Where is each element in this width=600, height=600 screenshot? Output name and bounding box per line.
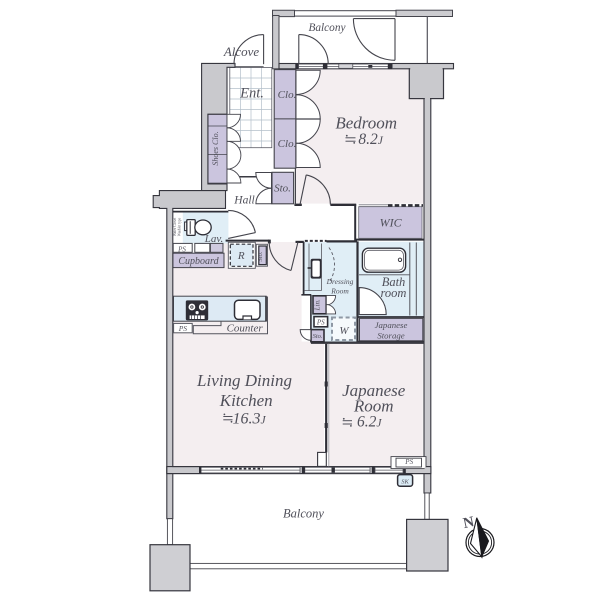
svg-text:PS: PS (404, 458, 413, 466)
svg-text:Kitchen: Kitchen (219, 391, 273, 410)
svg-text:Lav.: Lav. (204, 233, 223, 245)
svg-text:WIC: WIC (380, 215, 403, 229)
svg-text:Balcony: Balcony (283, 507, 324, 521)
svg-text:Counter: Counter (227, 323, 264, 335)
svg-text:Dressing: Dressing (326, 277, 354, 286)
svg-text:Room: Room (353, 396, 394, 415)
svg-text:Clo.: Clo. (278, 89, 297, 101)
svg-text:Clo.: Clo. (278, 138, 297, 150)
svg-text:PS: PS (177, 245, 186, 253)
svg-text:SK: SK (401, 479, 409, 486)
svg-text:Balcony: Balcony (308, 22, 346, 34)
svg-text:room: room (381, 286, 407, 300)
svg-text:W: W (339, 325, 349, 337)
svg-text:Sto.: Sto. (274, 183, 291, 195)
svg-text:Cupboard: Cupboard (178, 256, 219, 267)
svg-text:Storage: Storage (377, 331, 404, 341)
svg-text:Lin.: Lin. (314, 299, 322, 311)
svg-text:Japanese: Japanese (375, 320, 408, 330)
svg-text:Washlet type: Washlet type (177, 217, 181, 236)
svg-text:Sto.: Sto. (257, 251, 264, 261)
svg-text:Ent.: Ent. (239, 86, 264, 102)
svg-text:Hall: Hall (233, 195, 254, 207)
svg-text:Alcove: Alcove (223, 44, 260, 59)
svg-text:R: R (237, 250, 245, 262)
svg-text:PS: PS (178, 324, 188, 333)
svg-text:Shoes Clo.: Shoes Clo. (211, 131, 220, 165)
svg-text:Room: Room (330, 287, 349, 296)
svg-text:PS: PS (316, 319, 325, 327)
svg-text:Living Dining: Living Dining (196, 371, 292, 390)
svg-text:Sto.: Sto. (313, 333, 323, 340)
svg-text:Bedroom: Bedroom (335, 113, 397, 132)
